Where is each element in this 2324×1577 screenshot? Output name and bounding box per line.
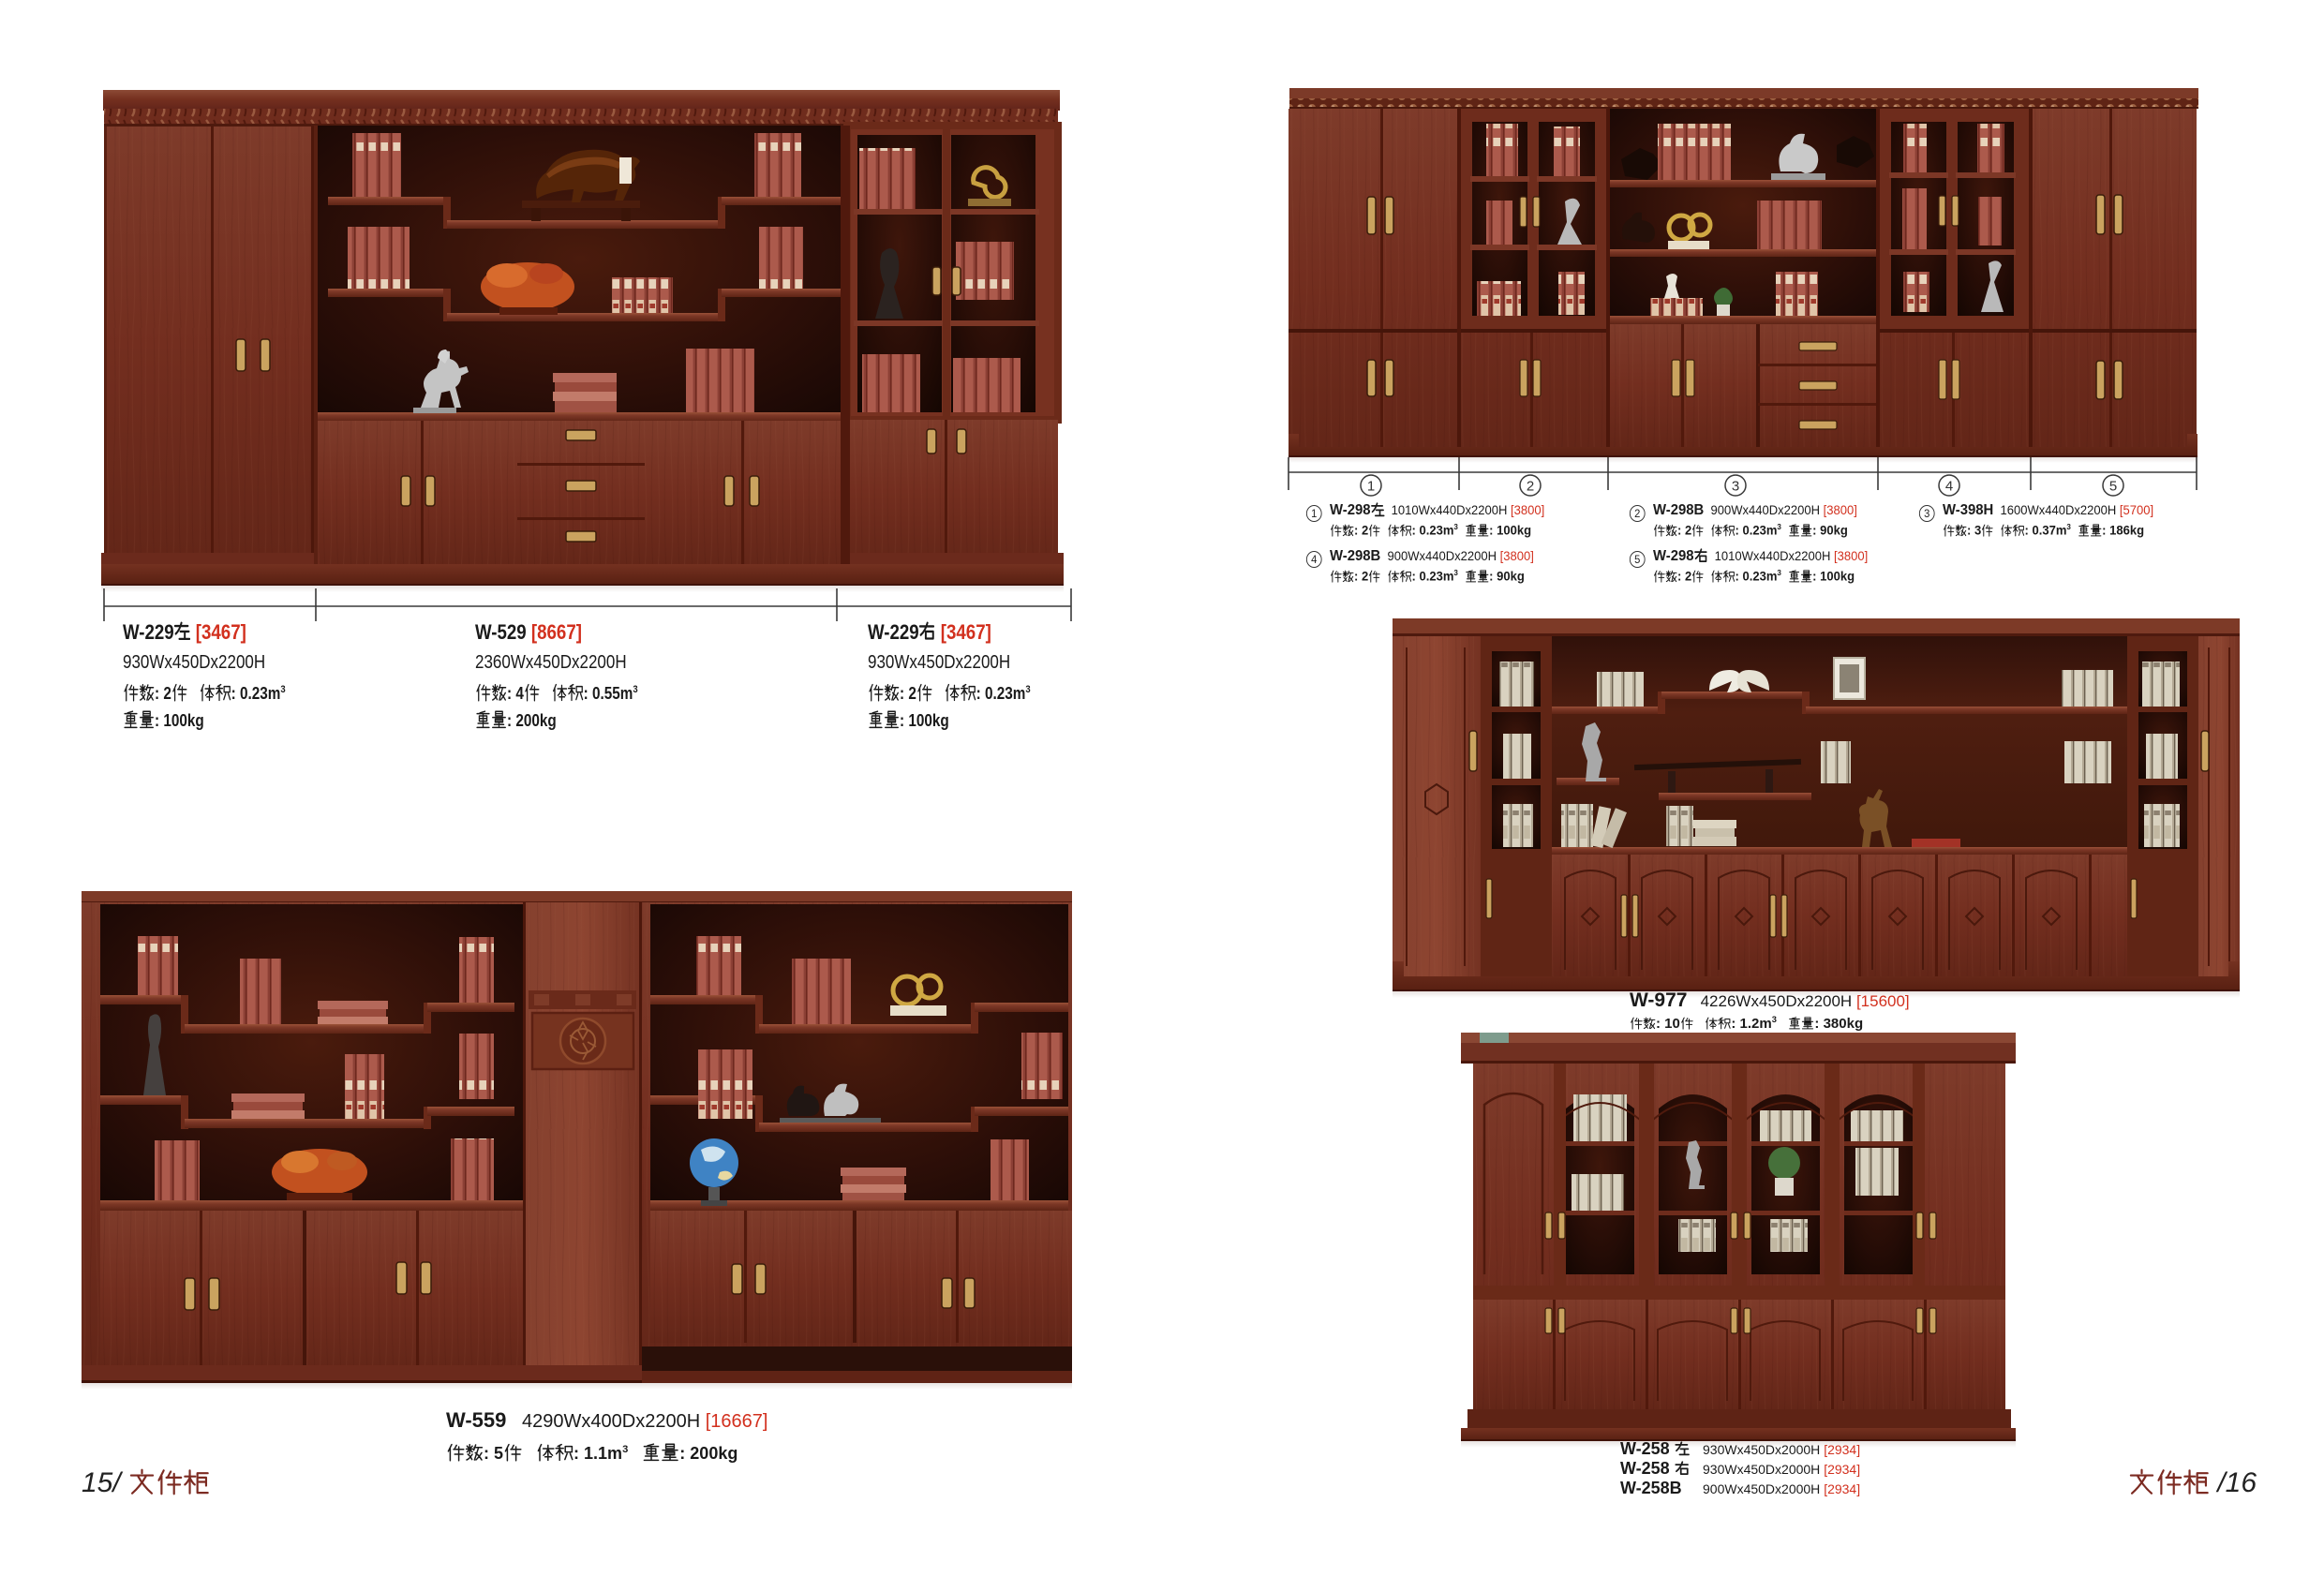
svg-text:5: 5 [2109,479,2117,495]
svg-text:4: 4 [1945,479,1953,495]
svg-text:3: 3 [1732,479,1739,495]
svg-text:1: 1 [1367,479,1375,495]
svg-text:2: 2 [1527,479,1534,495]
